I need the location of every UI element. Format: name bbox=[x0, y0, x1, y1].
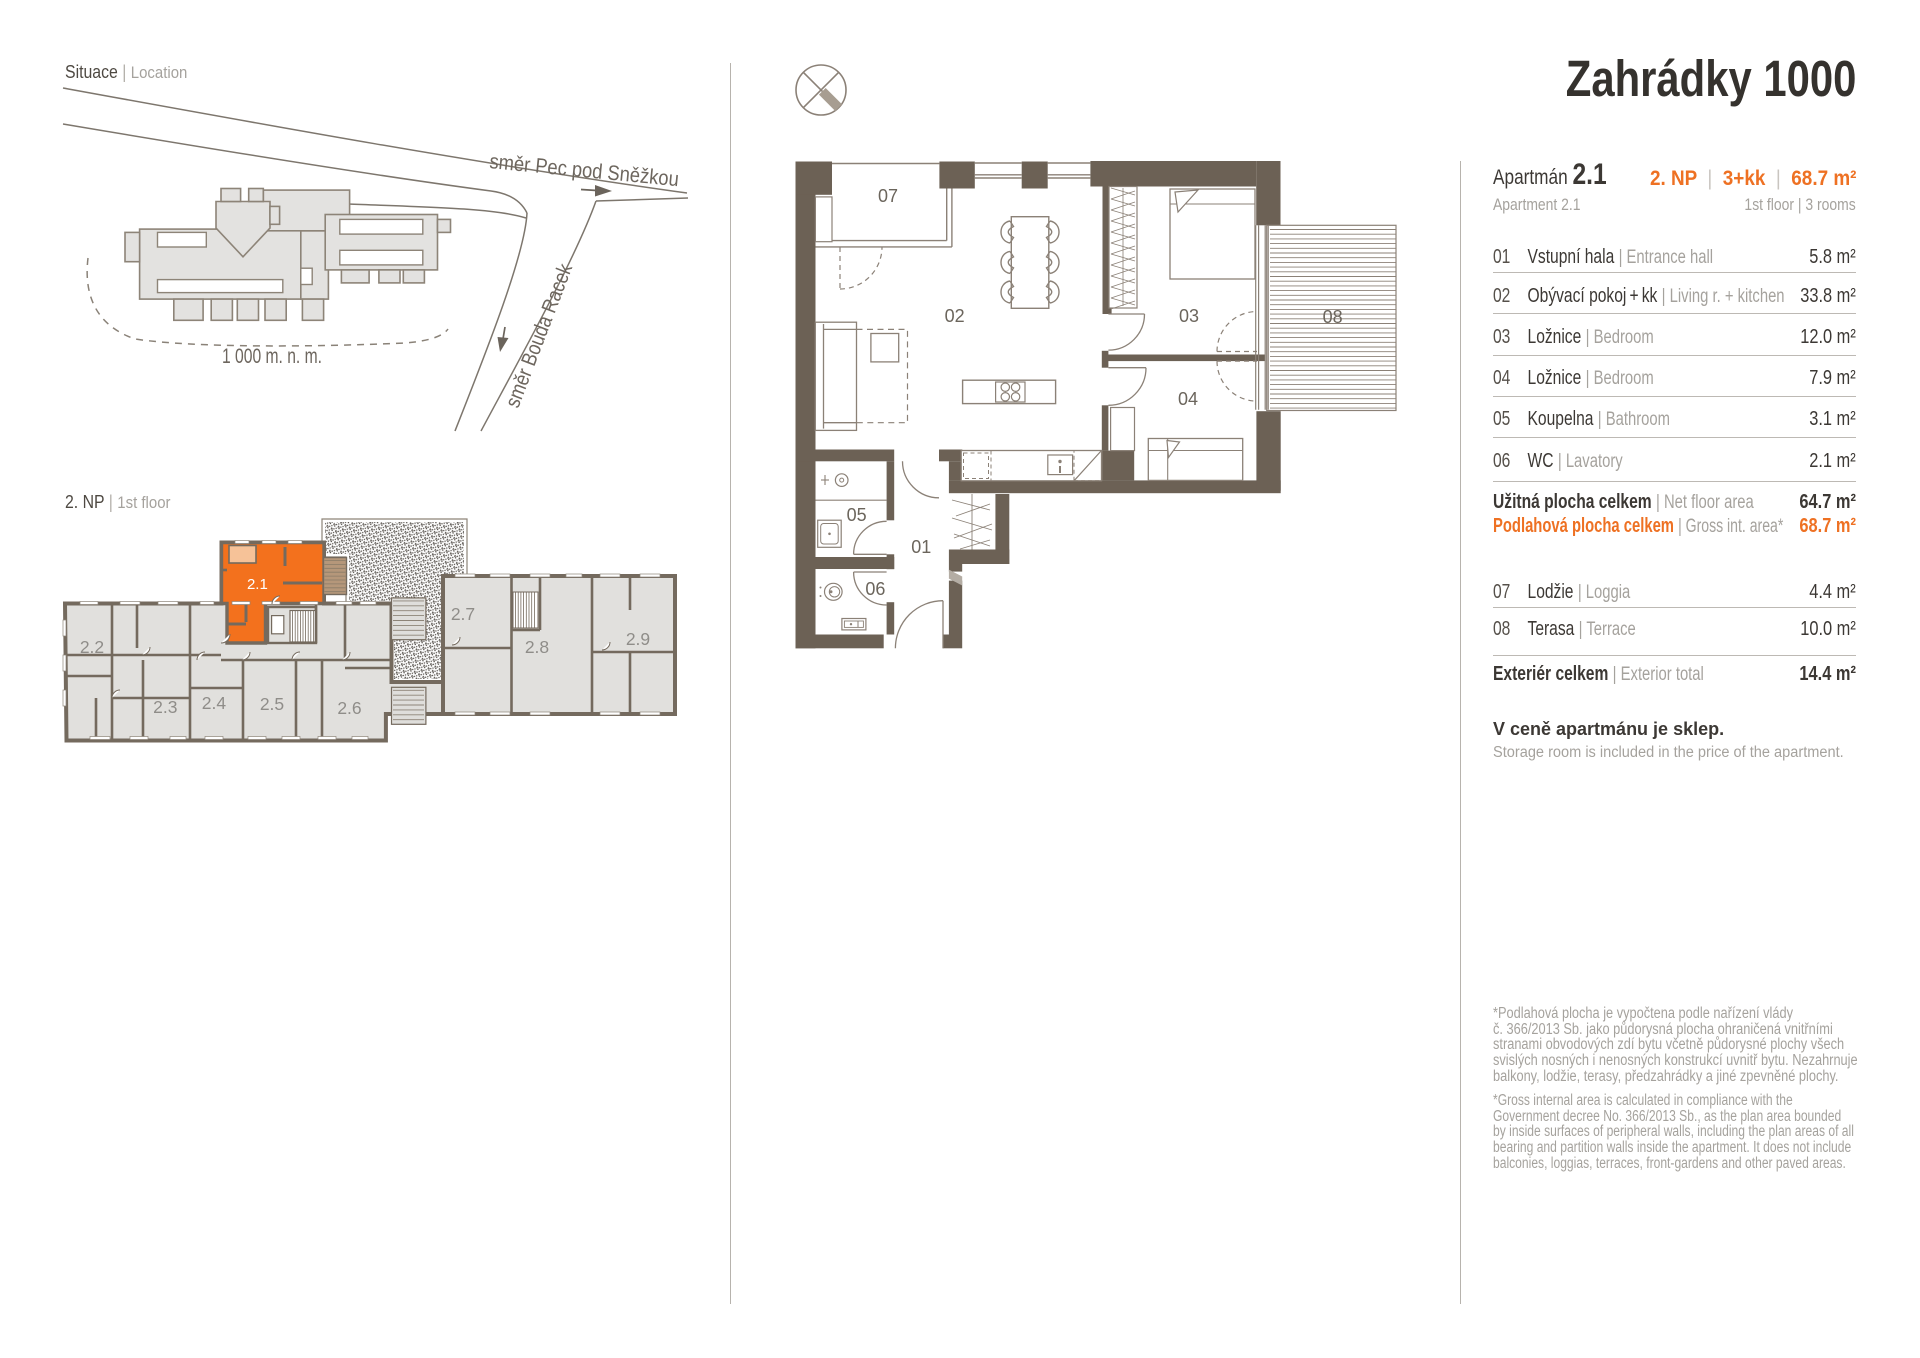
svg-text:2.1: 2.1 bbox=[247, 576, 268, 593]
svg-text:2.4: 2.4 bbox=[202, 693, 227, 713]
svg-text:01: 01 bbox=[911, 537, 931, 557]
svg-text:1 000 m. n. m.: 1 000 m. n. m. bbox=[222, 345, 322, 368]
svg-text:2.5: 2.5 bbox=[260, 694, 284, 714]
svg-text:2.8: 2.8 bbox=[525, 637, 549, 657]
svg-text:08: 08 bbox=[1323, 307, 1343, 327]
svg-text:2.3: 2.3 bbox=[153, 697, 177, 717]
svg-text:2.6: 2.6 bbox=[337, 698, 361, 718]
svg-text:směr Pec pod Sněžkou: směr Pec pod Sněžkou bbox=[489, 150, 680, 191]
svg-text:směr Bouda Racek: směr Bouda Racek bbox=[501, 260, 577, 411]
svg-text:05: 05 bbox=[847, 505, 867, 525]
svg-text:02: 02 bbox=[945, 306, 965, 326]
svg-text:2.9: 2.9 bbox=[626, 629, 650, 649]
svg-text:07: 07 bbox=[878, 186, 898, 206]
svg-text:06: 06 bbox=[865, 579, 885, 599]
svg-text:2.2: 2.2 bbox=[80, 637, 104, 657]
svg-text:04: 04 bbox=[1178, 389, 1198, 409]
svg-text:2.7: 2.7 bbox=[451, 604, 475, 624]
svg-text:03: 03 bbox=[1179, 306, 1199, 326]
